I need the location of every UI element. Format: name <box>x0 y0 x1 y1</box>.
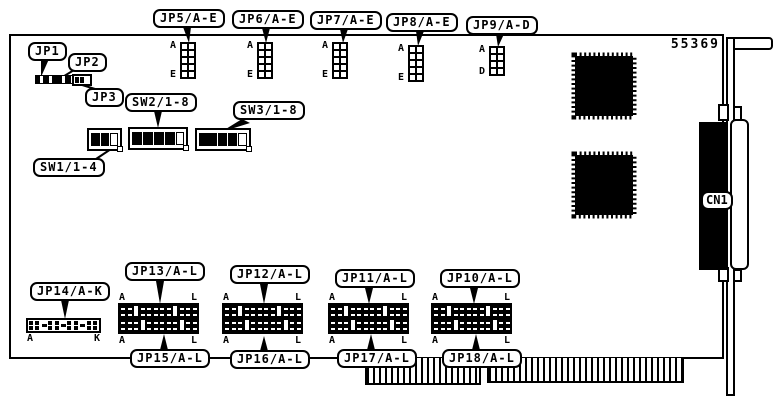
jumper-pin <box>232 322 236 324</box>
jumper-bank-jp13-jp15 <box>118 303 199 334</box>
jumper-pin <box>251 314 255 316</box>
switch-segment-off <box>176 132 184 145</box>
jumper-pin <box>266 44 271 49</box>
jumper-pin <box>499 308 503 310</box>
pin-letter-jp7-first: A <box>322 41 328 51</box>
pin-letter-jp14-first: A <box>27 334 33 344</box>
jumper-pin <box>48 326 52 330</box>
jumper-pin <box>473 308 477 310</box>
jumper-pin <box>186 308 190 310</box>
jumper-pin <box>67 326 71 330</box>
jumper-pin <box>338 314 342 316</box>
jumper-pin <box>61 324 66 327</box>
switch-segment-off <box>238 133 247 146</box>
jumper-pin <box>74 326 78 330</box>
pin-letter-jp13-tl: A <box>119 293 125 303</box>
jumper-pin <box>160 314 164 316</box>
jumper-pin <box>460 314 464 316</box>
jumper-pin <box>121 328 125 330</box>
jumper-pin <box>383 322 387 324</box>
jumper-pin <box>251 322 255 324</box>
pin-letter-jp11-br: L <box>401 336 407 346</box>
jumper-pin <box>473 328 477 330</box>
switch-segment-on <box>101 133 109 146</box>
jumper-pin <box>403 322 407 324</box>
jumper-pin <box>357 328 361 330</box>
jumper-pin <box>441 314 445 316</box>
jumper-pin <box>232 328 236 330</box>
jumper-pin <box>341 58 346 63</box>
jumper-pin <box>434 314 438 316</box>
jumper-pin <box>147 328 151 330</box>
jumper-block-jp6 <box>257 42 273 79</box>
jumper-pin <box>334 58 339 63</box>
jumper-pin <box>186 328 190 330</box>
jumper-pin <box>486 322 490 324</box>
jumper-pin <box>87 321 91 325</box>
jumper-pin <box>259 51 264 56</box>
chip-2 <box>575 155 633 215</box>
switch-segment-on <box>199 133 217 146</box>
jumper-pin <box>193 308 197 310</box>
jumper-pin <box>331 308 335 310</box>
jumper-pin <box>498 69 503 74</box>
label-jp9: JP9/A-D <box>466 16 538 35</box>
jumper-pin <box>258 322 262 324</box>
jumper-pin <box>491 62 496 67</box>
dip-switch-sw1 <box>87 128 122 151</box>
jumper-pin <box>297 322 301 324</box>
jumper-pin <box>396 328 400 330</box>
jumper-pin <box>193 328 197 330</box>
jumper-pin <box>334 51 339 56</box>
jumper-pin <box>499 322 503 324</box>
jumper-pin <box>331 328 335 330</box>
jumper-pin <box>467 322 471 324</box>
jumper-pin <box>35 326 39 330</box>
jumper-pin <box>491 55 496 60</box>
jumper-pin <box>121 308 125 310</box>
jumper-pin <box>189 65 194 70</box>
jumper-strip-jp1-jp2 <box>35 75 75 84</box>
switch-segment-on <box>218 133 227 146</box>
jumper-pin <box>167 328 171 330</box>
jumper-pin <box>42 324 47 327</box>
pin-letter-jp9-last: D <box>479 67 485 77</box>
switch-segment-on <box>228 133 237 146</box>
jumper-pin <box>344 306 348 316</box>
jumper-pin <box>264 328 268 330</box>
jumper-pin <box>154 322 158 324</box>
jumper-pin <box>189 44 194 49</box>
jumper-pin <box>238 322 242 324</box>
jumper-pin <box>258 328 262 330</box>
pin-letter-jp13-br: L <box>191 336 197 346</box>
jumper-pin <box>225 308 229 310</box>
jumper-pin <box>251 328 255 330</box>
jumper-pin <box>454 314 458 316</box>
label-jp14: JP14/A-K <box>30 282 110 301</box>
switch-corner-marker <box>117 146 123 152</box>
label-jp10: JP10/A-L <box>440 269 520 288</box>
jumper-pin <box>128 328 132 330</box>
jumper-pin <box>134 328 138 330</box>
label-jp16: JP16/A-L <box>230 350 310 369</box>
jumper-pin <box>182 44 187 49</box>
label-sw1: SW1/1-4 <box>33 158 105 177</box>
jumper-pin <box>189 51 194 56</box>
switch-segment-on <box>91 133 100 146</box>
jumper-pin <box>67 321 71 325</box>
jumper-pin <box>284 314 288 316</box>
jumper-pin <box>447 322 451 324</box>
jumper-pin <box>473 322 477 324</box>
jumper-pin <box>499 314 503 316</box>
jumper-pin <box>357 308 361 310</box>
jumper-pin <box>160 322 164 324</box>
jumper-pin <box>480 322 484 324</box>
jumper-pin <box>331 322 335 324</box>
pin-letter-jp10-tl: A <box>432 293 438 303</box>
jumper-pin <box>370 308 374 310</box>
jumper-pin <box>403 314 407 316</box>
jumper-pin <box>182 58 187 63</box>
label-jp13: JP13/A-L <box>125 262 205 281</box>
jumper-pin <box>454 320 458 330</box>
label-jp2: JP2 <box>68 53 107 72</box>
jumper-pin <box>271 308 275 310</box>
jumper-pin <box>460 308 464 310</box>
jumper-pin <box>364 322 368 324</box>
jumper-pin <box>160 308 164 310</box>
jumper-pin <box>417 68 422 73</box>
jumper-pin <box>128 308 132 310</box>
jumper-pin <box>491 48 496 53</box>
jumper-pin <box>338 308 342 310</box>
jumper-pin <box>232 308 236 310</box>
jumper-pin <box>410 75 415 80</box>
jumper-pin <box>290 308 294 310</box>
jumper-pin <box>225 314 229 316</box>
jumper-block-jp8 <box>408 45 424 82</box>
jumper-pin <box>271 314 275 316</box>
jumper-pin <box>493 314 497 316</box>
jumper-pin <box>180 308 184 310</box>
jumper-pin <box>284 308 288 310</box>
jumper-pin <box>390 320 394 330</box>
jumper-pin <box>290 314 294 316</box>
jumper-pin <box>480 308 484 310</box>
jumper-pin <box>245 314 249 316</box>
jumper-pin <box>383 306 387 316</box>
jumper-pin <box>396 314 400 316</box>
jumper-pin <box>173 306 177 316</box>
jumper-pin <box>189 58 194 63</box>
jumper-pin <box>357 322 361 324</box>
jumper-pin <box>193 322 197 324</box>
jumper-bank-jp10-jp18 <box>431 303 512 334</box>
jumper-pin <box>377 322 381 324</box>
jumper-pin <box>180 314 184 316</box>
jumper-pin <box>80 324 85 327</box>
jumper-pin <box>506 322 510 324</box>
jumper-pin <box>266 51 271 56</box>
jumper-pin <box>364 308 368 310</box>
jumper-pin <box>441 328 445 330</box>
jumper-pin <box>377 314 381 316</box>
jumper-pin <box>441 322 445 324</box>
jumper-pin <box>173 328 177 330</box>
jumper-pin <box>264 308 268 310</box>
part-number: 55369 <box>666 37 720 52</box>
jumper-pin <box>55 321 59 325</box>
jumper-pin <box>74 321 78 325</box>
jumper-pin <box>491 69 496 74</box>
pin-letter-jp13-bl: A <box>119 336 125 346</box>
pin-letter-jp10-br: L <box>504 336 510 346</box>
jumper-pin <box>147 308 151 310</box>
switch-corner-marker <box>183 145 189 151</box>
jumper-pin <box>141 320 145 330</box>
chip-1 <box>575 56 633 116</box>
jumper-pin <box>434 328 438 330</box>
jumper-pin <box>480 328 484 330</box>
jumper-pin <box>55 326 59 330</box>
jumper-pin <box>331 314 335 316</box>
jumper-pin <box>506 328 510 330</box>
jumper-pin <box>506 308 510 310</box>
pin-letter-jp8-last: E <box>398 73 404 83</box>
jumper-pin <box>390 314 394 316</box>
jumper-pin <box>284 320 288 330</box>
jumper-pin <box>390 308 394 310</box>
jumper-pin <box>121 314 125 316</box>
label-jp18: JP18/A-L <box>442 349 522 368</box>
jumper-pin <box>344 322 348 324</box>
jumper-pin <box>351 314 355 316</box>
pin-letter-jp12-tr: L <box>295 293 301 303</box>
jumper-pin <box>259 44 264 49</box>
jumper-pin <box>370 314 374 316</box>
pin-letter-jp8-first: A <box>398 44 404 54</box>
jumper-pin <box>277 328 281 330</box>
jumper-pin <box>351 320 355 330</box>
jumper-pin <box>417 75 422 80</box>
jumper-pin <box>297 328 301 330</box>
jumper-pin <box>410 47 415 52</box>
jumper-pin <box>238 306 242 316</box>
jumper-block-jp7 <box>332 42 348 79</box>
switch-segment-on <box>154 132 164 145</box>
jumper-pin <box>266 65 271 70</box>
jumper-block-jp14 <box>26 318 101 333</box>
jumper-pin <box>417 47 422 52</box>
jumper-pin <box>297 308 301 310</box>
pin-letter-jp12-bl: A <box>223 336 229 346</box>
pin-letter-jp7-last: E <box>322 70 328 80</box>
jumper-pin <box>93 321 97 325</box>
jumper-pin <box>454 308 458 310</box>
jumper-pin <box>29 321 33 325</box>
jumper-pin <box>258 314 262 316</box>
jumper-pin <box>341 65 346 70</box>
jumper-pin <box>245 308 249 310</box>
jumper-pin <box>460 328 464 330</box>
jumper-pin <box>447 306 451 316</box>
jumper-pin <box>93 326 97 330</box>
jumper-pin <box>334 44 339 49</box>
jumper-pin <box>173 322 177 324</box>
label-jp11: JP11/A-L <box>335 269 415 288</box>
jumper-pin <box>341 72 346 77</box>
jumper-pin <box>410 68 415 73</box>
jumper-pin <box>266 72 271 77</box>
jumper-pin <box>396 322 400 324</box>
jumper-pin <box>48 321 52 325</box>
jumper-pin <box>498 62 503 67</box>
pin-letter-jp13-tr: L <box>191 293 197 303</box>
jumper-bank-jp11-jp17 <box>328 303 409 334</box>
label-jp5: JP5/A-E <box>153 9 225 28</box>
jumper-pin <box>334 65 339 70</box>
jumper-pin <box>277 322 281 324</box>
label-jp3: JP3 <box>85 88 124 107</box>
pin-letter-jp11-bl: A <box>329 336 335 346</box>
connector-shell-cutout <box>731 120 748 269</box>
label-jp15: JP15/A-L <box>130 349 210 368</box>
jumper-pin <box>87 326 91 330</box>
jumper-pin <box>182 51 187 56</box>
jumper-pin <box>377 328 381 330</box>
jumper-pin <box>493 308 497 310</box>
jumper-pin <box>225 328 229 330</box>
dip-switch-sw2 <box>128 127 188 150</box>
jumper-pin <box>498 48 503 53</box>
pin-letter-jp5-last: E <box>170 70 176 80</box>
jumper-pin <box>128 314 132 316</box>
jumper-pin <box>447 328 451 330</box>
jumper-pin <box>364 314 368 316</box>
jumper-pin <box>364 328 368 330</box>
jumper-pin <box>417 54 422 59</box>
label-jp12: JP12/A-L <box>230 265 310 284</box>
label-jp7: JP7/A-E <box>310 11 382 30</box>
jumper-pin <box>377 308 381 310</box>
jumper-pin <box>434 322 438 324</box>
jumper-pin <box>499 328 503 330</box>
label-cn1: CN1 <box>701 191 733 210</box>
jumper-pin <box>154 308 158 310</box>
jumper-pin <box>232 314 236 316</box>
switch-segment-off <box>110 133 118 146</box>
jumper-pin <box>338 328 342 330</box>
jumper-pin <box>410 61 415 66</box>
jumper-pin <box>277 306 281 316</box>
jumper-pin <box>154 328 158 330</box>
jumper-pin <box>264 322 268 324</box>
jumper-pin <box>134 322 138 324</box>
jumper-bank-jp12-jp16 <box>222 303 303 334</box>
switch-segment-on <box>143 132 153 145</box>
jumper-pin <box>264 314 268 316</box>
jumper-pin <box>186 322 190 324</box>
jumper-pin <box>271 328 275 330</box>
jumper-pin <box>290 322 294 324</box>
label-sw2: SW2/1-8 <box>125 93 197 112</box>
jumper-pin <box>259 72 264 77</box>
jumper-pin <box>403 328 407 330</box>
switch-segment-on <box>165 132 175 145</box>
jumper-pin <box>259 65 264 70</box>
jumper-pin <box>403 308 407 310</box>
pin-letter-jp10-bl: A <box>432 336 438 346</box>
jumper-pin <box>167 314 171 316</box>
jumper-pin <box>341 44 346 49</box>
jumper-pin <box>189 72 194 77</box>
jumper-pin <box>251 308 255 310</box>
jumper-pin <box>180 320 184 330</box>
label-jp17: JP17/A-L <box>337 349 417 368</box>
pin-letter-jp12-tl: A <box>223 293 229 303</box>
jumper-pin <box>351 308 355 310</box>
jumper-pin <box>370 322 374 324</box>
pin-letter-jp11-tl: A <box>329 293 335 303</box>
jumper-pin <box>467 308 471 310</box>
label-jp6: JP6/A-E <box>232 10 304 29</box>
jumper-pin <box>344 328 348 330</box>
jumper-pin <box>35 321 39 325</box>
jumper-pin <box>266 58 271 63</box>
jumper-pin <box>141 308 145 310</box>
dip-switch-sw3 <box>195 128 251 151</box>
jumper-pin <box>128 322 132 324</box>
jumper-pin <box>506 314 510 316</box>
board-artwork <box>0 0 777 401</box>
jumper-pin <box>186 314 190 316</box>
jumper-block-jp3 <box>72 74 92 86</box>
jumper-pin <box>383 328 387 330</box>
jumper-pin <box>480 314 484 316</box>
jumper-pin <box>154 314 158 316</box>
jumper-pin <box>441 308 445 310</box>
jumper-pin <box>141 314 145 316</box>
jumper-block-jp5 <box>180 42 196 79</box>
jumper-pin <box>460 322 464 324</box>
jumper-pin <box>410 54 415 59</box>
jumper-pin <box>259 58 264 63</box>
jumper-pin <box>334 72 339 77</box>
jumper-pin <box>182 72 187 77</box>
jumper-pin <box>182 65 187 70</box>
jumper-pin <box>290 328 294 330</box>
pin-letter-jp11-tr: L <box>401 293 407 303</box>
label-jp1: JP1 <box>28 42 67 61</box>
pin-letter-jp6-last: E <box>247 70 253 80</box>
jumper-pin <box>498 55 503 60</box>
pin-letter-jp5-first: A <box>170 41 176 51</box>
jumper-pin <box>370 328 374 330</box>
jumper-pin <box>341 51 346 56</box>
jumper-pin <box>434 308 438 310</box>
pin-letter-jp6-first: A <box>247 41 253 51</box>
jumper-pin <box>271 322 275 324</box>
label-jp8: JP8/A-E <box>386 13 458 32</box>
label-sw3: SW3/1-8 <box>233 101 305 120</box>
jumper-pin <box>193 314 197 316</box>
jumper-pin <box>167 322 171 324</box>
jumper-pin <box>121 322 125 324</box>
jumper-pin <box>467 314 471 316</box>
